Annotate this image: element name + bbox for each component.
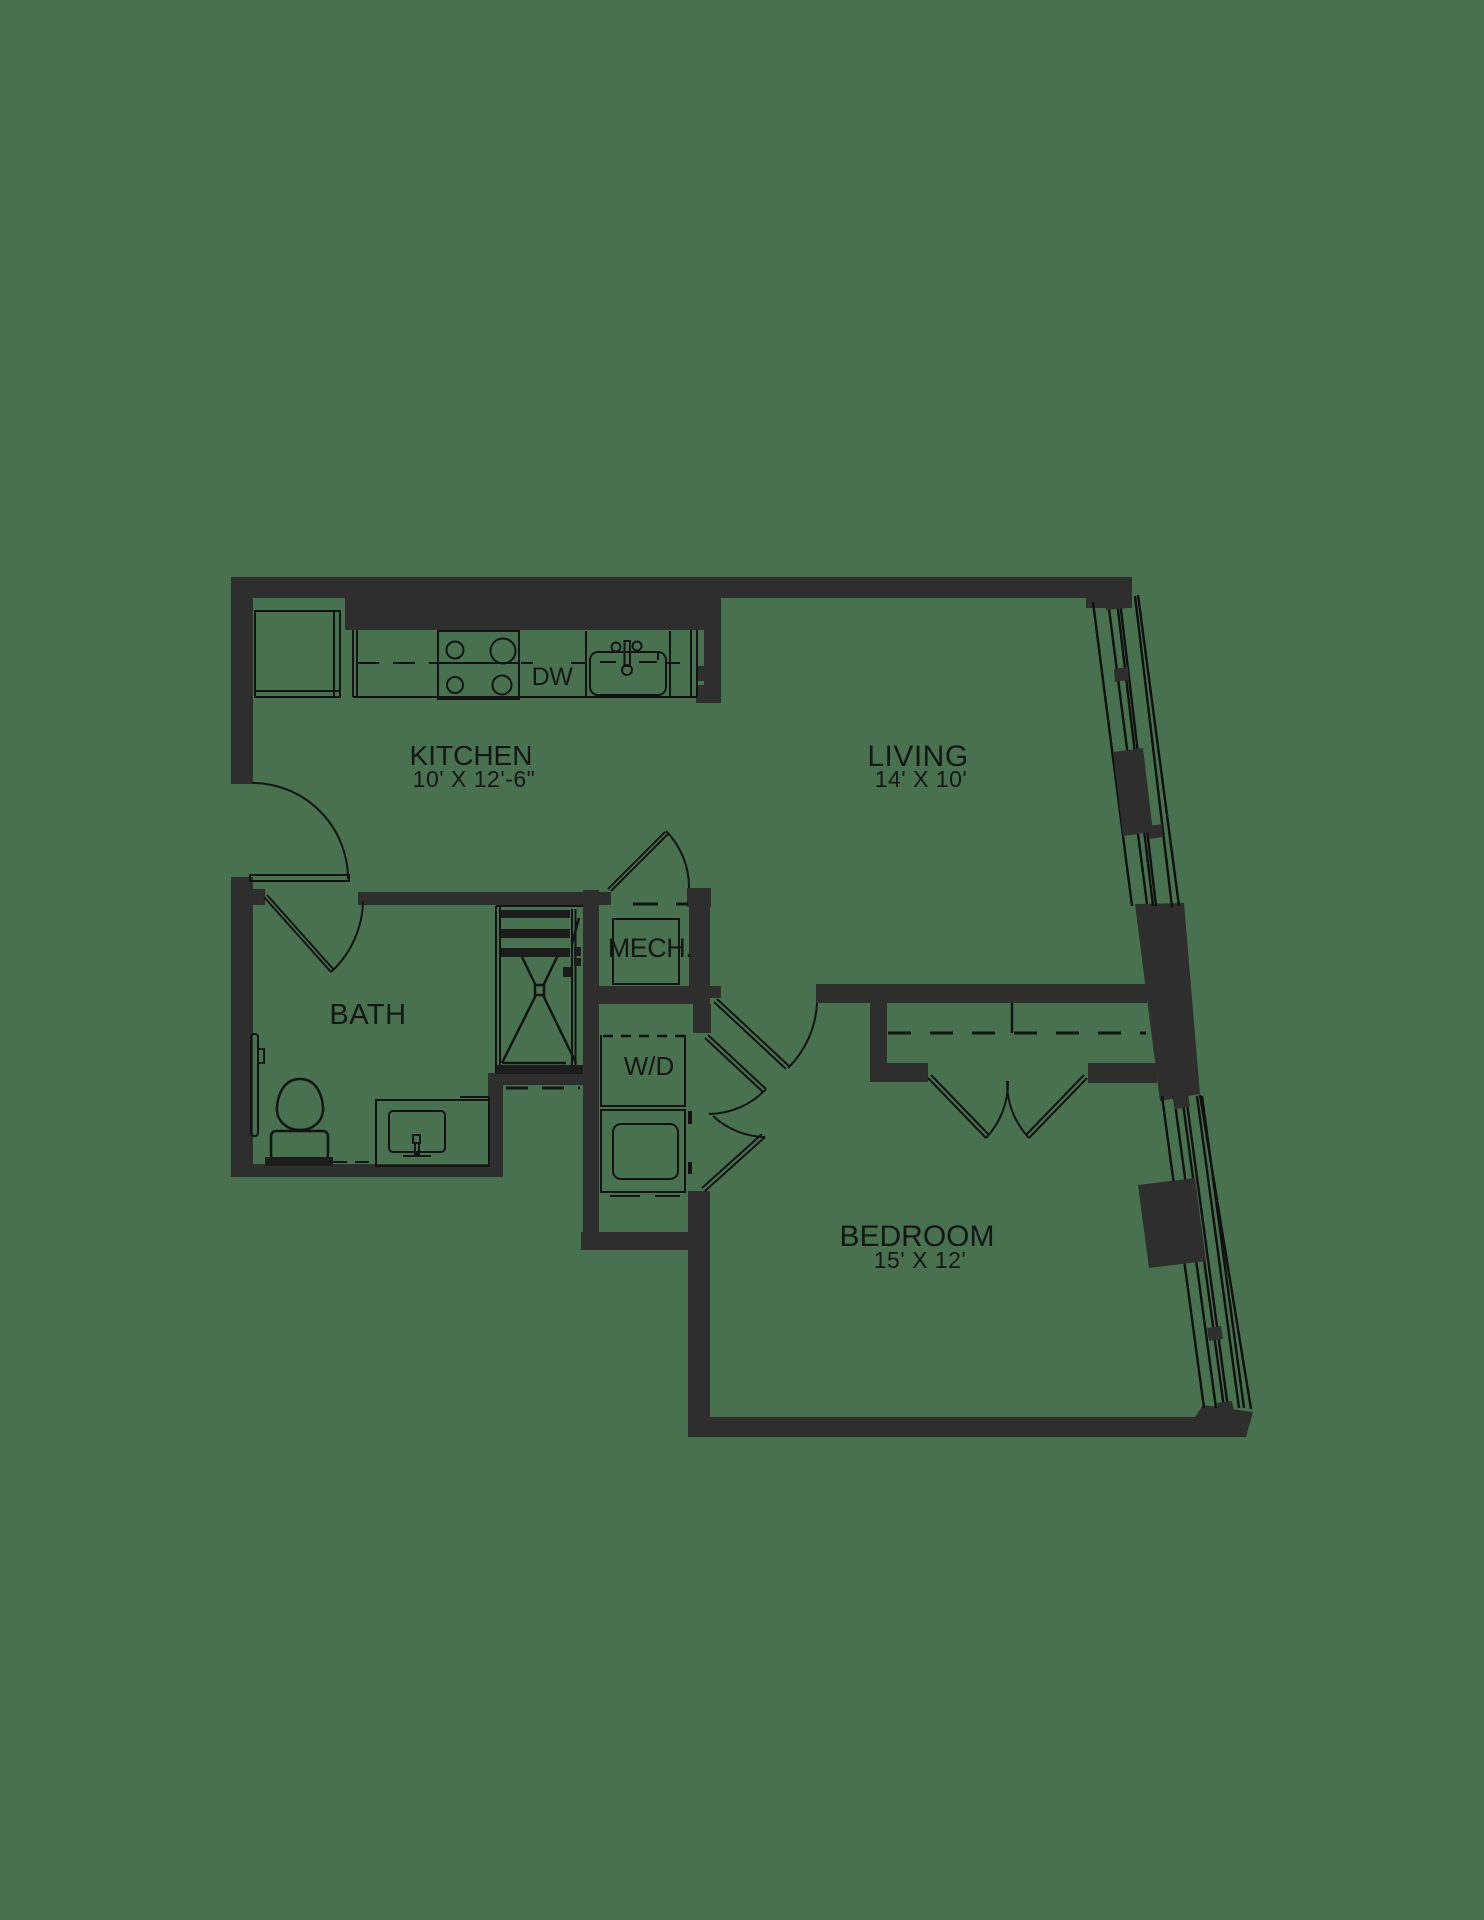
- svg-text:14' X 10': 14' X 10': [875, 766, 968, 792]
- svg-text:15' X 12': 15' X 12': [874, 1247, 967, 1273]
- svg-text:DW: DW: [532, 663, 574, 691]
- svg-text:BATH: BATH: [329, 999, 406, 1031]
- svg-text:10' X 12'-6": 10' X 12'-6": [413, 766, 536, 792]
- svg-text:W/D: W/D: [624, 1051, 675, 1081]
- svg-text:MECH.: MECH.: [608, 933, 693, 963]
